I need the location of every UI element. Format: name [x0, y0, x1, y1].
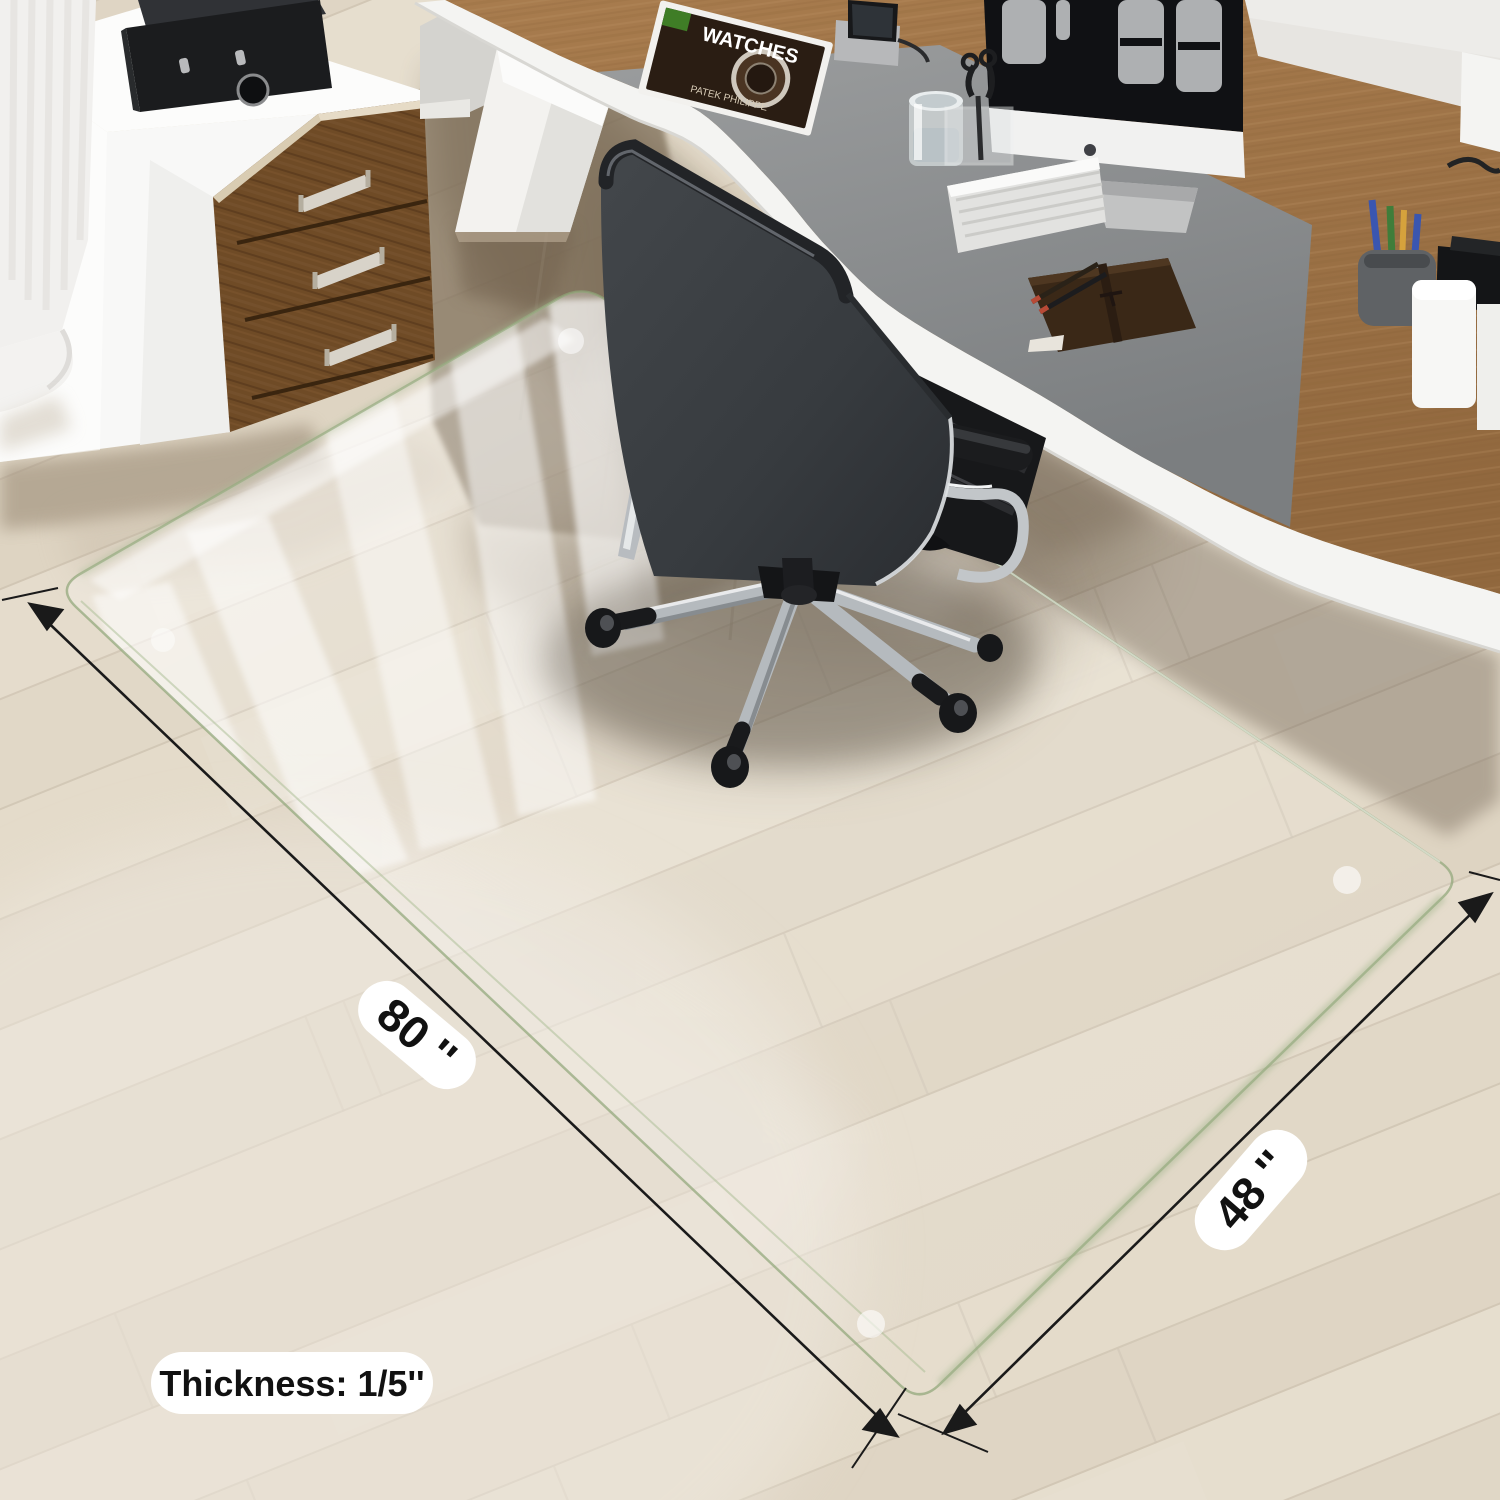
- svg-text:Thickness: 1/5'': Thickness: 1/5'': [159, 1363, 424, 1404]
